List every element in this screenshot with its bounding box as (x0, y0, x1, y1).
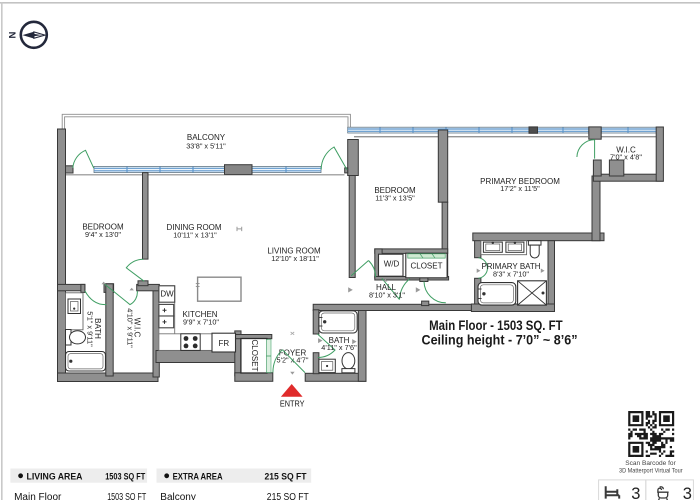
svg-text:7'0" x 4'8": 7'0" x 4'8" (610, 152, 642, 161)
svg-text:EXTRA AREA: EXTRA AREA (173, 471, 223, 482)
svg-text:8'3" x 7'10": 8'3" x 7'10" (493, 270, 529, 279)
svg-text:1503 SQ FT: 1503 SQ FT (107, 492, 146, 500)
svg-text:FR: FR (218, 339, 229, 348)
svg-text:Balcony: Balcony (160, 492, 196, 500)
svg-text:3: 3 (631, 485, 640, 500)
svg-text:Main Floor - 1503 SQ. FT: Main Floor - 1503 SQ. FT (429, 318, 563, 333)
svg-text:11'3" x 13'5": 11'3" x 13'5" (375, 194, 415, 203)
svg-text:ENTRY: ENTRY (280, 399, 305, 409)
svg-text:215 SQ FT: 215 SQ FT (267, 492, 309, 500)
svg-text:9'9" x 7'10": 9'9" x 7'10" (183, 318, 219, 327)
svg-text:33'8" x 5'11": 33'8" x 5'11" (186, 141, 226, 150)
svg-text:8'10" x 3'1": 8'10" x 3'1" (369, 291, 405, 300)
svg-text:3D Matterport Virtual Tour: 3D Matterport Virtual Tour (619, 468, 683, 475)
svg-text:10'11" x 13'1": 10'11" x 13'1" (173, 231, 217, 240)
svg-text:LIVING AREA: LIVING AREA (27, 471, 83, 482)
svg-text:W/D: W/D (384, 260, 400, 269)
svg-text:4'11" x 7'6": 4'11" x 7'6" (321, 343, 357, 352)
svg-text:12'10" x 18'11": 12'10" x 18'11" (271, 254, 319, 263)
svg-text:CLOSET: CLOSET (410, 262, 442, 271)
svg-text:N: N (8, 31, 19, 38)
svg-text:4'10" x 9'11": 4'10" x 9'11" (125, 308, 134, 348)
svg-text:17'2" x 11'5": 17'2" x 11'5" (500, 184, 540, 193)
svg-text:Main Floor: Main Floor (14, 492, 62, 500)
svg-text:5'1" x 9'11": 5'1" x 9'11" (86, 311, 95, 347)
svg-text:1503 SQ FT: 1503 SQ FT (105, 471, 145, 482)
svg-text:Scan Barcode for: Scan Barcode for (625, 460, 676, 467)
svg-text:215 SQ FT: 215 SQ FT (265, 471, 307, 482)
svg-text:CLOSET: CLOSET (250, 339, 259, 371)
svg-text:3: 3 (683, 485, 692, 500)
svg-text:DW: DW (160, 290, 174, 299)
svg-text:Ceiling height - 7’0” ~ 8’6”: Ceiling height - 7’0” ~ 8’6” (422, 333, 578, 348)
svg-text:9'4" x 13'0": 9'4" x 13'0" (85, 230, 121, 239)
